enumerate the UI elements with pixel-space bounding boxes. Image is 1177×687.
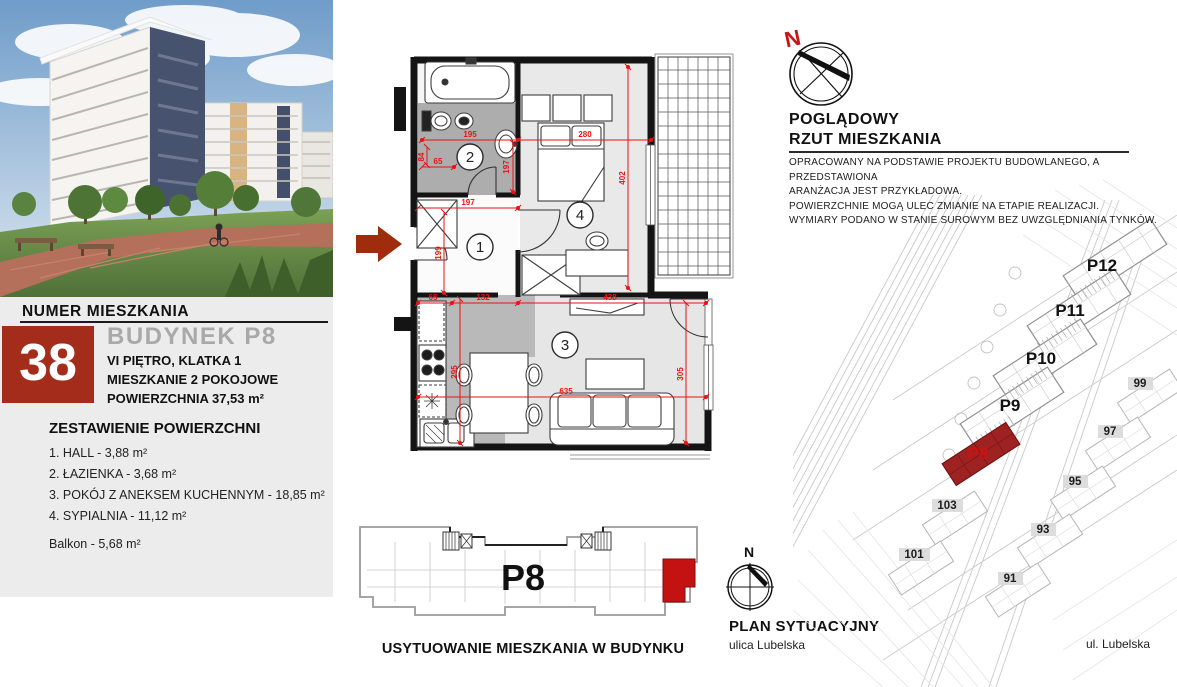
north-label: N xyxy=(744,544,754,560)
site-label-p9: P9 xyxy=(1000,396,1021,415)
site-label-97: 97 xyxy=(1104,426,1117,438)
site-label-p11: P11 xyxy=(1055,301,1084,320)
dining-table xyxy=(470,353,528,433)
site-label-101: 101 xyxy=(904,549,924,561)
area-item: 3. POKÓJ Z ANEKSEM KUCHENNYM - 18,85 m² xyxy=(49,485,325,506)
wardrobe xyxy=(417,200,457,248)
dim-label: 195 xyxy=(463,130,477,139)
site-label-103: 103 xyxy=(937,500,956,512)
area-item: 4. SYPIALNIA - 11,12 m² xyxy=(49,506,325,527)
dim-label: 635 xyxy=(559,387,573,396)
compass-rose-icon: N xyxy=(779,22,857,110)
dim-label: 305 xyxy=(676,367,685,381)
disclaimer-line: POWIERZCHNIE MOGĄ ULEC ZMIANIE NA ETAPIE… xyxy=(789,200,1159,215)
dim-label: 402 xyxy=(618,171,627,185)
dim-label: 197 xyxy=(502,160,511,174)
unit-floor: VI PIĘTRO, KLATKA 1 xyxy=(107,351,278,370)
room-number-hall: 1 xyxy=(476,239,484,256)
north-label: N xyxy=(782,25,803,53)
disclaimer-line: WYMIARY PODANO W STANIE SUROWYM BEZ UWZG… xyxy=(789,214,1159,229)
desk-chair xyxy=(586,232,608,250)
unit-details: VI PIĘTRO, KLATKA 1 MIESZKANIE 2 POKOJOW… xyxy=(107,351,278,408)
sofa xyxy=(550,393,674,445)
legend-rule xyxy=(789,151,1129,153)
site-label-95: 95 xyxy=(1069,476,1082,488)
dim-label: 132 xyxy=(476,293,490,302)
building-photo xyxy=(0,0,333,297)
stair-core xyxy=(443,532,472,550)
legend-title-line2: RZUT MIESZKANIA xyxy=(789,130,942,150)
unit-type: MIESZKANIE 2 POKOJOWE xyxy=(107,370,278,389)
desk xyxy=(566,250,628,276)
balcony xyxy=(655,54,733,278)
dim-label: 84 xyxy=(417,152,426,161)
dim-label: 295 xyxy=(450,365,459,379)
building-location-plan: P8 xyxy=(355,512,700,637)
unit-number-header: NUMER MIESZKANIA xyxy=(22,303,189,321)
dim-label: 280 xyxy=(578,130,592,139)
site-street-label: ul. Lubelska xyxy=(1086,637,1150,651)
areas-title: ZESTAWIENIE POWIERZCHNI xyxy=(49,420,260,437)
legend-title: POGLĄDOWY RZUT MIESZKANIA xyxy=(789,110,942,150)
dim-label: 438 xyxy=(603,293,617,302)
bathtub xyxy=(425,58,515,103)
site-buildings xyxy=(888,219,1177,617)
coffee-table xyxy=(586,359,644,389)
bidet xyxy=(455,113,473,129)
entrance-arrow-icon xyxy=(356,226,402,262)
dim-label: 199 xyxy=(434,246,443,260)
room-number-living: 3 xyxy=(561,337,569,354)
disclaimer-line: ARANŻACJA JEST PRZYKŁADOWA. xyxy=(789,185,1159,200)
dim-label: 65 xyxy=(429,293,438,302)
room-number-bedroom: 4 xyxy=(576,207,584,224)
building-location-label: P8 xyxy=(501,557,545,598)
unit-area: POWIERZCHNIA 37,53 m² xyxy=(107,389,278,408)
disclaimer-line: OPRACOWANY NA PODSTAWIE PROJEKTU BUDOWLA… xyxy=(789,156,1159,185)
unit-number-badge: 38 xyxy=(2,326,94,403)
site-label-p8: P8 xyxy=(968,444,989,463)
legend-title-line1: POGLĄDOWY xyxy=(789,110,942,130)
bedroom-shelves xyxy=(522,95,612,121)
compass-icon: N xyxy=(723,543,779,615)
site-label-p10: P10 xyxy=(1026,349,1056,368)
stair-core xyxy=(581,532,611,550)
legend-disclaimer: OPRACOWANY NA PODSTAWIE PROJEKTU BUDOWLA… xyxy=(789,156,1159,229)
room-number-bathroom: 2 xyxy=(466,149,474,166)
area-item: 2. ŁAZIENKA - 3,68 m² xyxy=(49,464,325,485)
site-label-93: 93 xyxy=(1037,524,1050,536)
dim-label: 197 xyxy=(461,198,475,207)
toilet xyxy=(422,111,451,131)
site-label-99: 99 xyxy=(1134,378,1147,390)
dim-label: 65 xyxy=(434,157,443,166)
area-item: 1. HALL - 3,88 m² xyxy=(49,443,325,464)
balcony-area: Balkon - 5,68 m² xyxy=(49,537,141,551)
site-label-p12: P12 xyxy=(1087,256,1117,275)
building-name: BUDYNEK P8 xyxy=(107,323,277,351)
areas-list: 1. HALL - 3,88 m² 2. ŁAZIENKA - 3,68 m² … xyxy=(49,443,325,527)
site-label-91: 91 xyxy=(1004,573,1017,585)
bed xyxy=(538,123,604,201)
building-location-caption: USYTUOWANIE MIESZKANIA W BUDYNKU xyxy=(377,641,689,657)
floor-plan: 195 197 65 84 197 199 280 402 65 132 438… xyxy=(352,45,770,465)
